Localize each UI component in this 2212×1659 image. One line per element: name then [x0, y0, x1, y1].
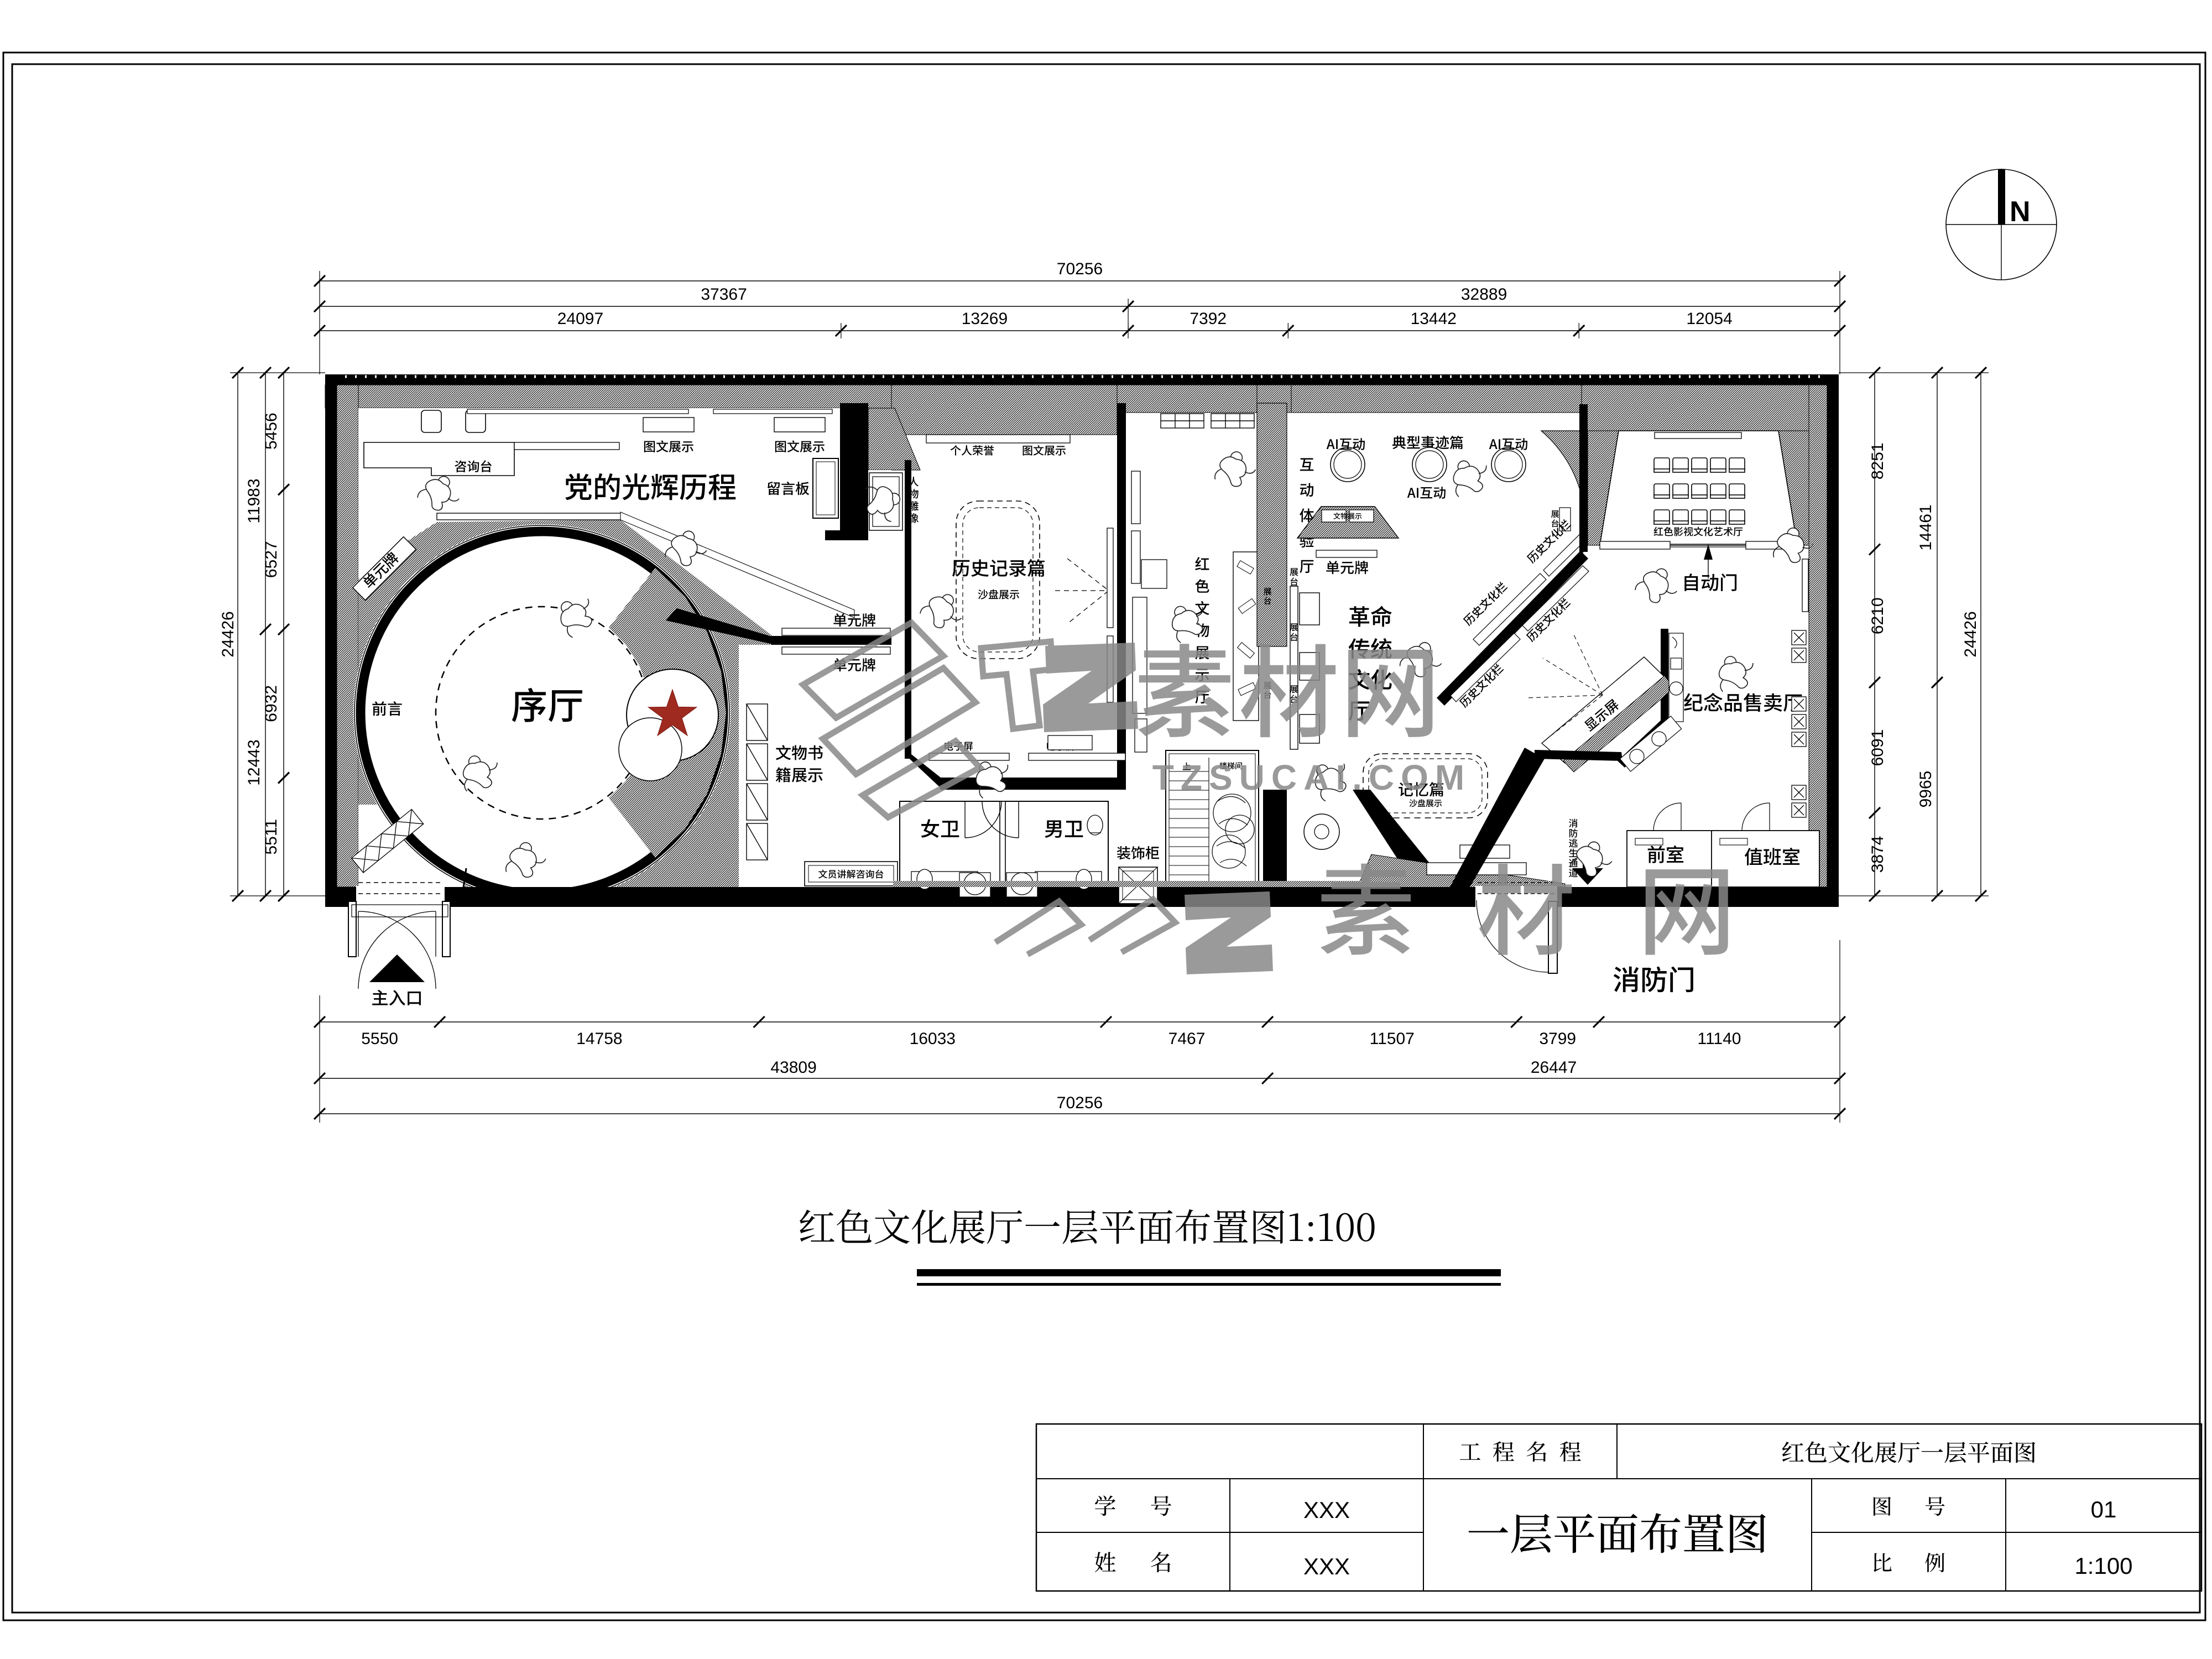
- svg-text:70256: 70256: [1057, 1094, 1103, 1112]
- svg-text:12054: 12054: [1686, 310, 1732, 328]
- svg-text:7467: 7467: [1168, 1030, 1206, 1048]
- svg-text:11983: 11983: [245, 478, 263, 523]
- svg-text:5550: 5550: [361, 1030, 398, 1048]
- svg-text:32889: 32889: [1461, 285, 1507, 304]
- svg-text:XXX: XXX: [1303, 1553, 1350, 1579]
- svg-text:16033: 16033: [910, 1030, 956, 1048]
- svg-text:12443: 12443: [245, 739, 263, 785]
- svg-text:11140: 11140: [1697, 1030, 1741, 1048]
- svg-text:43809: 43809: [770, 1058, 816, 1077]
- svg-text:9965: 9965: [1917, 771, 1935, 808]
- svg-text:3799: 3799: [1539, 1030, 1576, 1048]
- svg-text:01: 01: [2091, 1496, 2117, 1522]
- svg-text:14758: 14758: [576, 1030, 622, 1048]
- svg-text:14461: 14461: [1917, 504, 1935, 550]
- svg-text:3874: 3874: [1869, 836, 1887, 873]
- svg-text:5511: 5511: [262, 819, 280, 855]
- svg-text:6210: 6210: [1869, 597, 1887, 634]
- svg-text:13442: 13442: [1411, 310, 1457, 328]
- svg-text:26447: 26447: [1531, 1058, 1577, 1077]
- svg-text:TZSUCAI.COM: TZSUCAI.COM: [1152, 758, 1471, 797]
- svg-text:N: N: [2010, 196, 2031, 228]
- svg-text:13269: 13269: [962, 310, 1008, 328]
- svg-text:8251: 8251: [1869, 442, 1887, 479]
- svg-text:6527: 6527: [262, 541, 280, 578]
- svg-text:XXX: XXX: [1303, 1497, 1350, 1523]
- svg-text:5456: 5456: [262, 413, 280, 450]
- svg-text:6091: 6091: [1869, 729, 1887, 766]
- svg-text:24097: 24097: [557, 310, 603, 328]
- svg-text:24426: 24426: [219, 611, 237, 657]
- svg-text:11507: 11507: [1370, 1030, 1415, 1048]
- svg-text:6932: 6932: [262, 685, 280, 722]
- svg-text:24426: 24426: [1961, 611, 1980, 657]
- svg-text:7392: 7392: [1190, 310, 1227, 328]
- svg-text:70256: 70256: [1057, 260, 1103, 278]
- svg-text:37367: 37367: [701, 285, 747, 304]
- svg-text:1:100: 1:100: [2074, 1553, 2132, 1579]
